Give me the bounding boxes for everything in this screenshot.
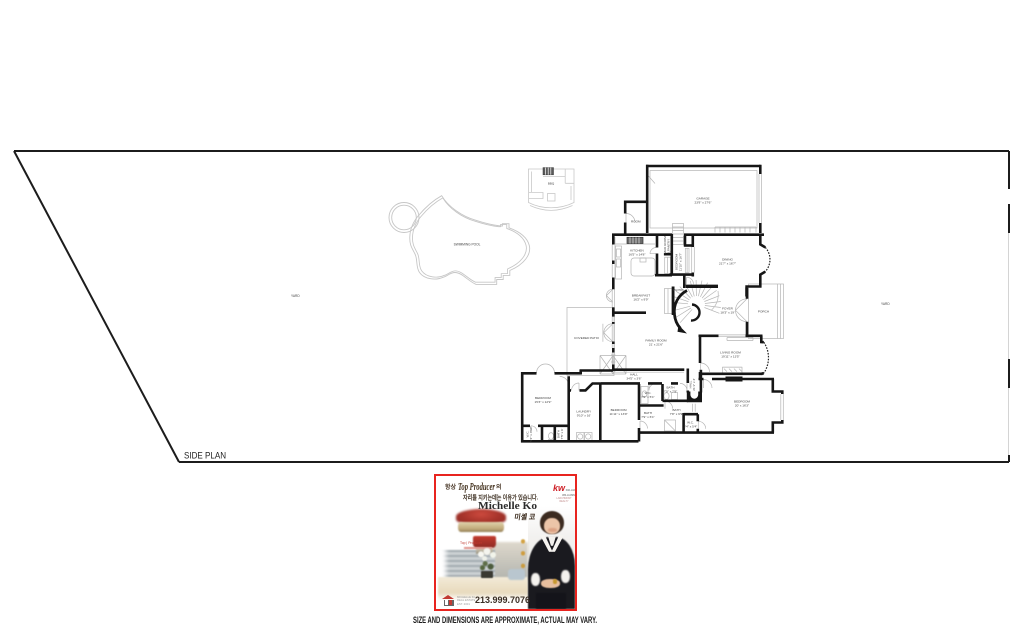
- svg-text:Top Producer: Top Producer: [458, 482, 495, 493]
- svg-text:21' x 21'6": 21' x 21'6": [649, 342, 663, 346]
- svg-text:20' x 16'3": 20' x 16'3": [735, 404, 749, 408]
- svg-text:23'9" x 27'6": 23'9" x 27'6": [695, 201, 712, 205]
- svg-text:PANTRY: PANTRY: [673, 288, 684, 292]
- svg-text:SWIMMING POOL: SWIMMING POOL: [454, 243, 481, 247]
- svg-text:YARD: YARD: [881, 302, 890, 306]
- svg-text:18'3" x 19': 18'3" x 19': [720, 311, 735, 315]
- svg-text:5'2" x 4'10": 5'2" x 4'10": [529, 426, 533, 441]
- svg-text:PORCH: PORCH: [758, 310, 769, 314]
- svg-text:의: 의: [496, 483, 502, 491]
- svg-text:COVERED PATIO: COVERED PATIO: [574, 336, 600, 340]
- svg-text:21'7" x 16'7": 21'7" x 16'7": [719, 262, 736, 266]
- svg-text:19'11" x 13'5": 19'11" x 13'5": [721, 355, 739, 359]
- svg-text:16'5" x 14'8": 16'5" x 14'8": [629, 252, 646, 256]
- svg-text:16'2" x 9'9": 16'2" x 9'9": [633, 297, 648, 301]
- svg-text:34'5" x 3'6": 34'5" x 3'6": [626, 376, 641, 380]
- svg-text:7'5" x 6': 7'5" x 6': [560, 428, 564, 439]
- svg-text:15'3" x 12'9": 15'3" x 12'9": [535, 400, 552, 404]
- svg-text:항상: 항상: [445, 483, 456, 491]
- svg-text:9'10" x 16': 9'10" x 16': [577, 414, 592, 418]
- svg-text:7'9" x 7'8": 7'9" x 7'8": [664, 390, 678, 394]
- svg-text:3'4" x 5'4": 3'4" x 5'4": [684, 424, 698, 428]
- svg-text:Michelle Ko: Michelle Ko: [478, 500, 538, 512]
- svg-text:미셸 코: 미셸 코: [514, 512, 536, 522]
- svg-text:11'10" x 16'7": 11'10" x 16'7": [679, 253, 683, 271]
- svg-text:7'6" x 5'1": 7'6" x 5'1": [641, 395, 655, 399]
- svg-text:21'1" x 3': 21'1" x 3': [692, 378, 696, 391]
- svg-text:SIDE PLAN: SIDE PLAN: [184, 450, 226, 461]
- svg-text:11'11" x 13'9": 11'11" x 13'9": [609, 412, 627, 416]
- svg-text:PANTRY: PANTRY: [667, 239, 671, 251]
- svg-text:BBQ: BBQ: [548, 181, 555, 185]
- svg-text:7'8" x 9'9": 7'8" x 9'9": [670, 412, 684, 416]
- svg-text:YARD: YARD: [291, 294, 300, 298]
- svg-text:ROOM: ROOM: [631, 219, 641, 223]
- svg-text:7'9" x 6'1": 7'9" x 6'1": [641, 415, 655, 419]
